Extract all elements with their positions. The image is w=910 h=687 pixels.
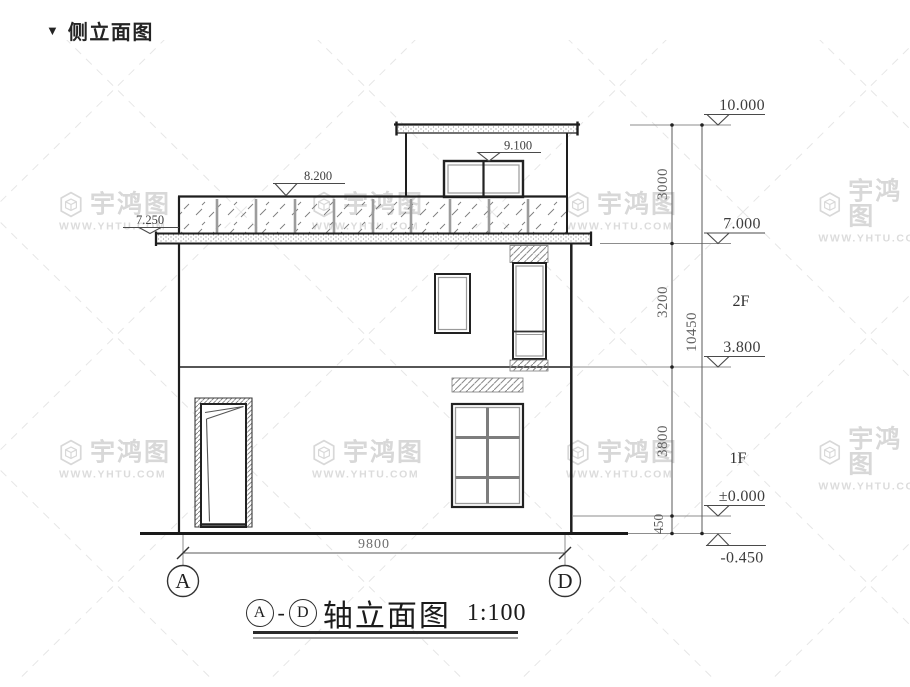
elevation-value: 8.200 [304, 169, 332, 183]
elevation-marker-0000: ±0.000 [704, 488, 765, 516]
elevation-drawing: 9.100 8.200 7.250 3000 3200 3800 450 104… [0, 0, 910, 687]
first-floor-window [452, 378, 523, 507]
lintel-hatch [452, 378, 523, 392]
floor-label-1f: 1F [730, 450, 747, 467]
second-floor-window-tall [510, 246, 548, 372]
elevation-marker-minus-450: -0.450 [706, 534, 766, 567]
elevation-value: -0.450 [720, 550, 763, 567]
dim-3800: 3800 [655, 425, 671, 457]
second-floor-window-small [435, 274, 470, 333]
elevation-marker-3800: 3.800 [704, 339, 765, 367]
lintel-hatch [510, 246, 548, 263]
axis-bubble-d: D [550, 566, 581, 597]
elevation-marker-9100: 9.100 [478, 139, 541, 162]
elevation-value: 9.100 [504, 139, 532, 153]
roof-parapet-railing [178, 197, 568, 233]
title-name: 轴立面图 [323, 591, 451, 635]
title-axis-circle-d: D [289, 599, 317, 627]
elevation-marker-7250: 7.250 [123, 213, 179, 234]
height-dimension-chain: 3000 3200 3800 450 10450 [651, 123, 704, 535]
axis-letter: D [557, 569, 572, 593]
page: { "header": { "marker": "▼", "title": "侧… [0, 0, 910, 687]
title-axis-circle-a: A [246, 599, 274, 627]
title-underline-thin [253, 637, 518, 639]
bulkhead-window [444, 161, 523, 197]
floor-label-2f: 2F [733, 293, 750, 310]
main-roof-slab [155, 232, 592, 247]
title-underline-thick [253, 631, 518, 634]
elevation-value: 3.800 [723, 339, 761, 356]
dim-total-height: 10450 [684, 312, 700, 352]
elevation-value: 7.000 [723, 216, 761, 233]
axis-bubble-a: A [168, 566, 199, 597]
elevation-value: 10.000 [719, 97, 765, 114]
elevation-value: ±0.000 [719, 488, 766, 505]
elevation-value: 7.250 [136, 213, 164, 227]
elevation-marker-10000: 10.000 [704, 97, 765, 125]
elevation-marker-8200: 8.200 [273, 169, 345, 196]
axis-letter: A [175, 569, 191, 593]
dim-3200: 3200 [655, 286, 671, 318]
first-floor-door [195, 398, 252, 527]
dim-450: 450 [651, 514, 666, 535]
width-dimension: 9800 [177, 535, 571, 566]
level-extension-lines [573, 125, 731, 534]
bulkhead-roof-slab [397, 126, 577, 133]
dim-3000: 3000 [655, 168, 671, 200]
title-scale: 1:100 [467, 600, 527, 627]
title-axis-separator: - [278, 600, 285, 626]
sill-hatch [510, 360, 548, 371]
elevation-marker-7000: 7.000 [704, 216, 765, 244]
dim-total-width: 9800 [358, 537, 390, 552]
drawing-title: A - D 轴立面图 1:100 [228, 591, 544, 635]
